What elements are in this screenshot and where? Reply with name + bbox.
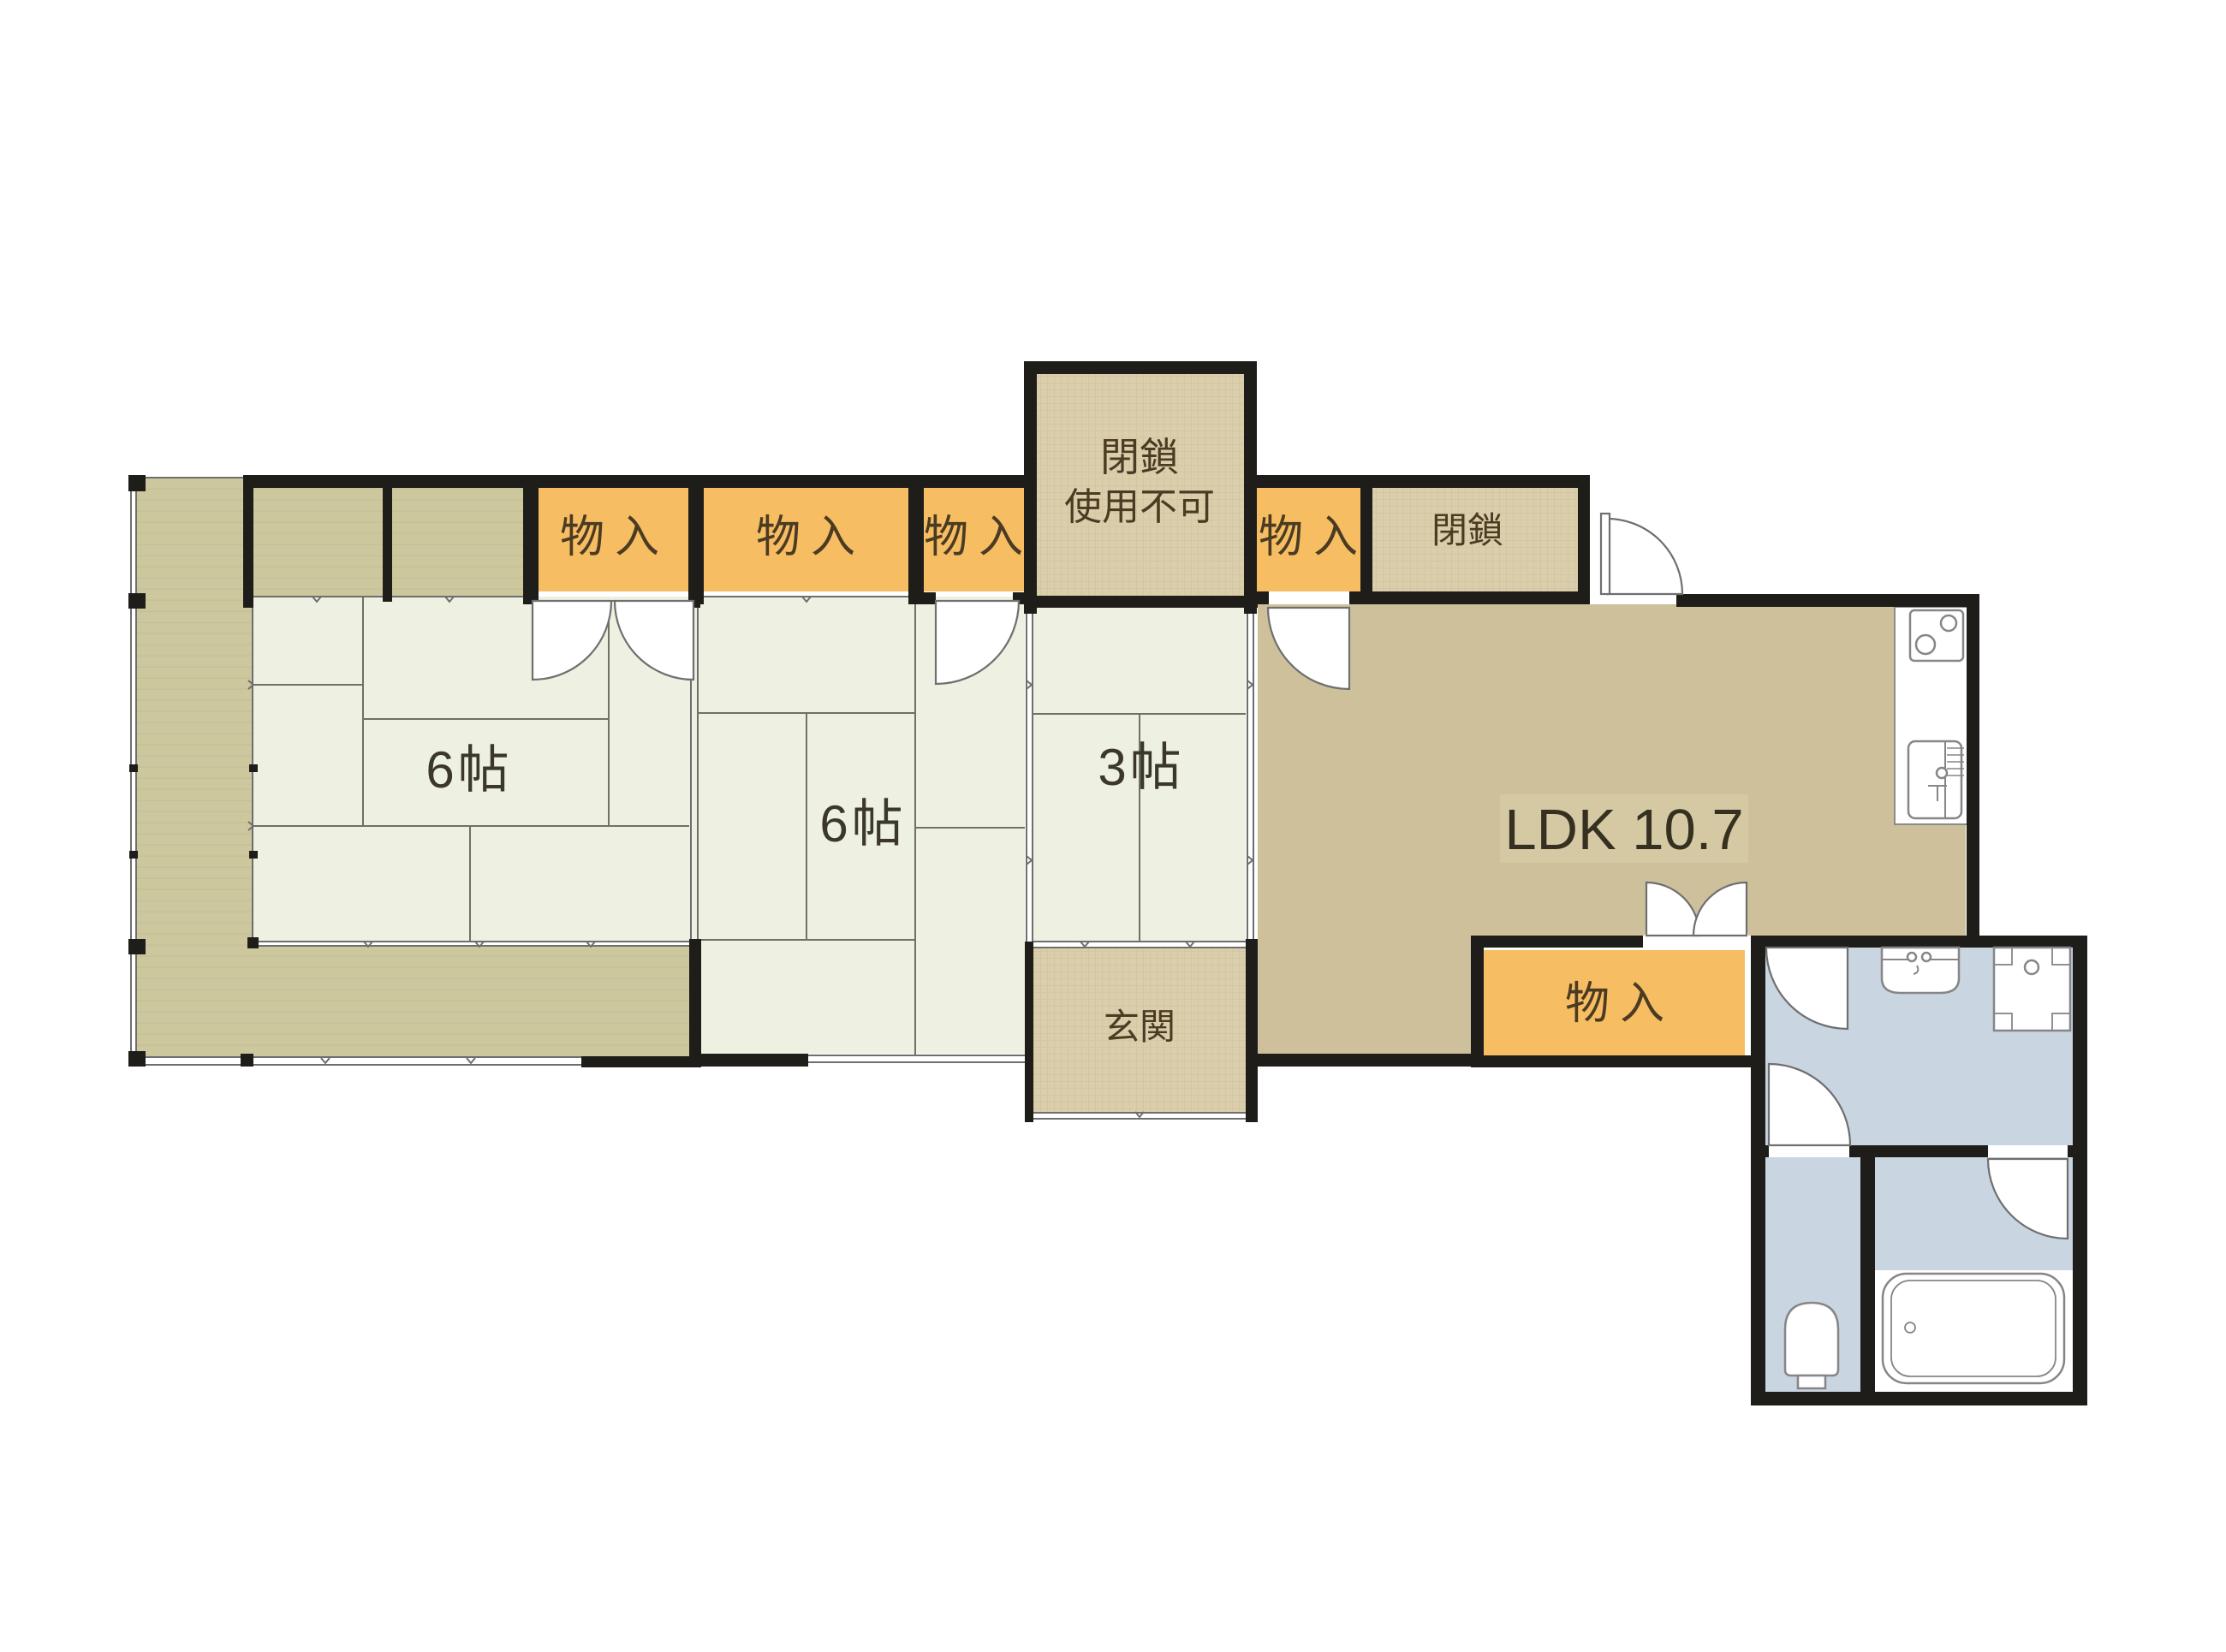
svg-text:使用不可: 使用不可 bbox=[1064, 486, 1215, 528]
svg-text:玄関: 玄関 bbox=[1104, 1007, 1175, 1047]
svg-text:閉鎖: 閉鎖 bbox=[1431, 510, 1503, 550]
svg-text:6帖: 6帖 bbox=[819, 795, 906, 853]
svg-text:閉鎖: 閉鎖 bbox=[1100, 435, 1179, 479]
svg-text:LDK 10.7: LDK 10.7 bbox=[1504, 798, 1743, 862]
svg-text:物入: 物入 bbox=[1565, 979, 1675, 1029]
svg-text:物入: 物入 bbox=[756, 513, 866, 562]
svg-text:6帖: 6帖 bbox=[426, 741, 512, 799]
svg-text:物入: 物入 bbox=[1259, 513, 1368, 562]
svg-text:3帖: 3帖 bbox=[1098, 739, 1184, 796]
svg-text:物入: 物入 bbox=[924, 513, 1033, 562]
svg-text:物入: 物入 bbox=[560, 513, 670, 562]
